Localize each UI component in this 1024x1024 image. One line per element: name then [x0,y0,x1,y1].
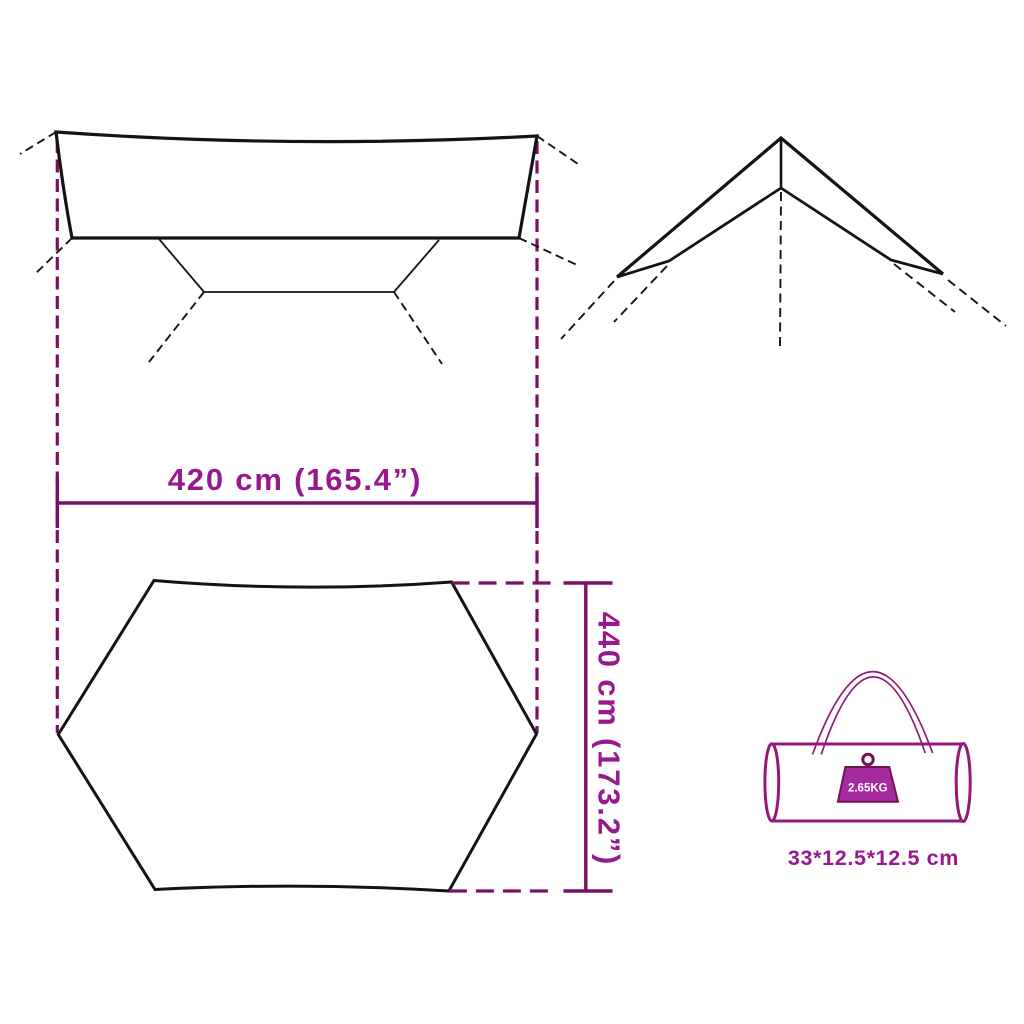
svg-text:2.65KG: 2.65KG [848,782,888,794]
svg-text:33*12.5*12.5 cm: 33*12.5*12.5 cm [788,846,959,870]
svg-text:440 cm (173.2”): 440 cm (173.2”) [592,612,627,866]
svg-text:420 cm (165.4”): 420 cm (165.4”) [168,462,422,497]
